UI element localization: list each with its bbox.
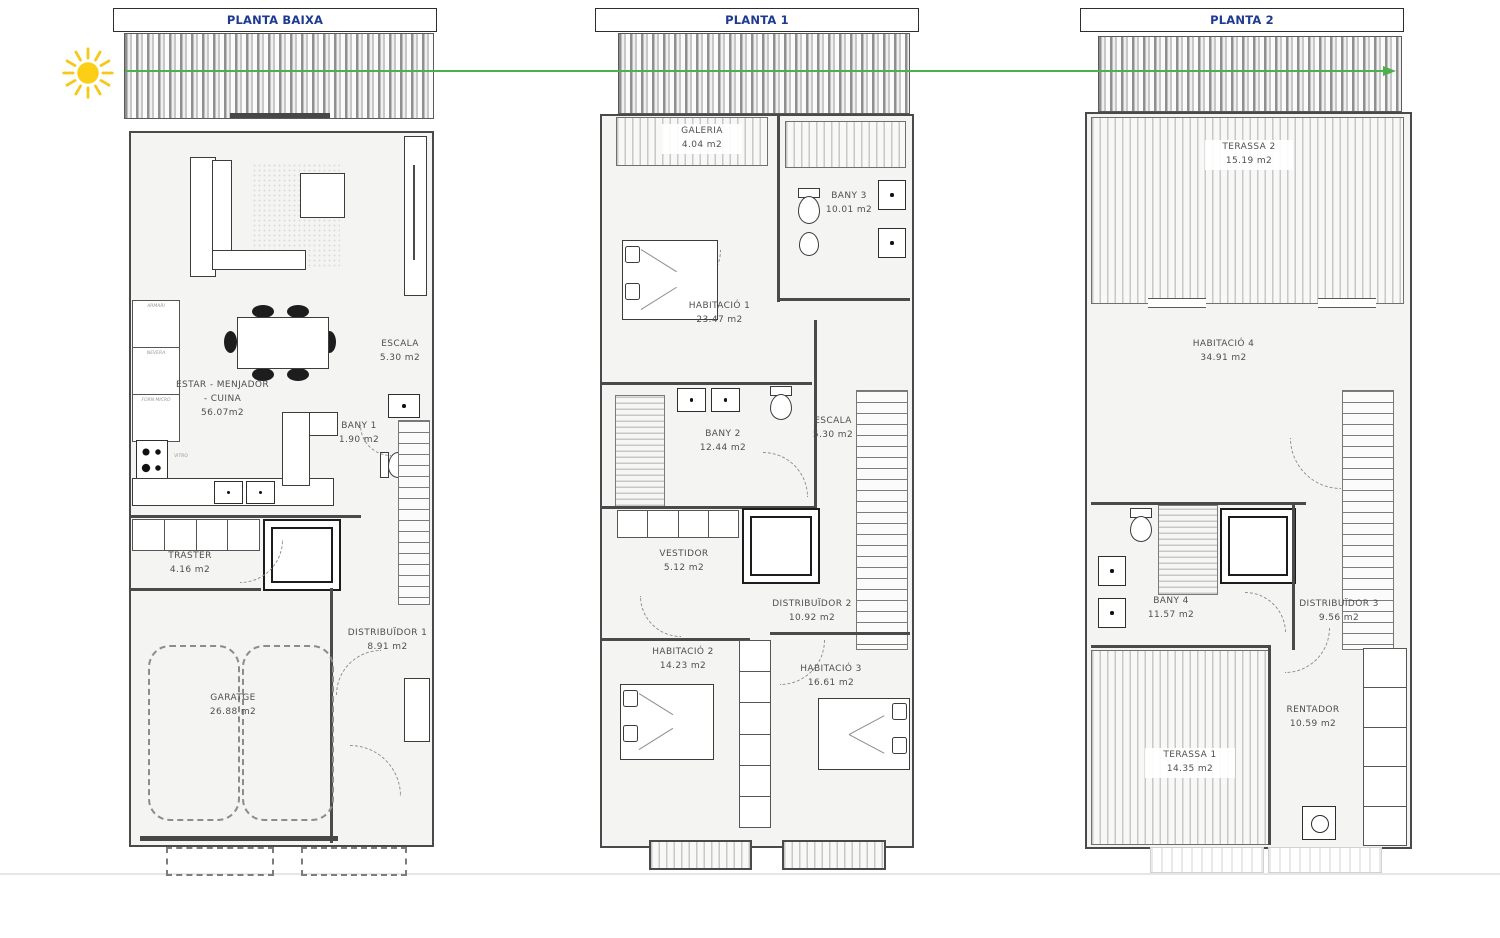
- bath-sink: [711, 388, 740, 412]
- chair: [224, 331, 237, 353]
- elevator-shaft-p1: [742, 508, 820, 584]
- room-label-bany2: BANY 2 12.44 m2: [688, 428, 758, 456]
- bath-cabinet: [1098, 598, 1126, 628]
- room-label-rentador: RENTADOR 10.59 m2: [1272, 704, 1354, 732]
- car-outline: [242, 645, 334, 821]
- room-label-bany3: BANY 3 10.01 m2: [815, 190, 883, 218]
- parking-space-outline: [301, 847, 407, 876]
- balcony-ghost: [1150, 847, 1264, 873]
- room-label-distribuidor1: DISTRIBUÏDOR 1 8.91 m2: [340, 627, 435, 655]
- plan-title-planta-1: PLANTA 1: [595, 8, 919, 32]
- double-bed: [818, 698, 910, 770]
- garage-door: [140, 836, 338, 841]
- room-label-terassa1: TERASSA 1 14.35 m2: [1145, 748, 1235, 778]
- plan-title-planta-2: PLANTA 2: [1080, 8, 1404, 32]
- room-label-bany1: BANY 1 1.90 m2: [328, 420, 390, 448]
- kitchen-label: NEVERA: [133, 348, 179, 356]
- entry-porch: [404, 678, 430, 742]
- kitchen-sink: [214, 481, 243, 504]
- floorplan-sheet: PLANTA BAIXA ARMARI NEVERA FORN MICRO VI…: [0, 0, 1500, 938]
- bath-sink: [677, 388, 706, 412]
- window: [1318, 298, 1376, 308]
- balcony-ghost: [1268, 847, 1382, 873]
- balcony-p1: [649, 840, 752, 870]
- pergola-hatch-pb: [124, 33, 434, 119]
- kitchen-label: ARMARI: [133, 301, 179, 309]
- interior-wall: [777, 298, 910, 301]
- balcony-p1: [782, 840, 886, 870]
- coffee-table: [300, 173, 345, 218]
- room-label-garatge: GARATGE 26.88 m2: [193, 692, 273, 720]
- elevator-shaft-p2: [1220, 508, 1296, 584]
- shower-hatch: [1158, 505, 1218, 595]
- pergola-hatch-p2: [1098, 36, 1402, 112]
- room-label-distribuidor3: DISTRIBUÏDOR 3 9.56 m2: [1288, 598, 1390, 626]
- washing-machine: [1302, 806, 1336, 840]
- room-label-habitacio3: HABITACIÓ 3 16.61 m2: [785, 663, 877, 691]
- toilet-bowl: [770, 394, 792, 420]
- orientation-arrow-east: [125, 70, 1384, 72]
- sofa-seat: [212, 250, 306, 270]
- interior-wall: [777, 114, 780, 302]
- cooktop: [136, 440, 168, 482]
- room-label-escala-p1: ESCALA 5.30 m2: [800, 415, 866, 443]
- pergola-hatch-p1: [618, 33, 910, 114]
- room-label-habitacio2: HABITACIÓ 2 14.23 m2: [638, 646, 728, 674]
- kitchen-sink: [246, 481, 275, 504]
- car-outline: [148, 645, 240, 821]
- wall-unit-line: [413, 165, 415, 260]
- kitchen-label-vitro: VITRO: [170, 455, 192, 460]
- bath-cabinet: [1098, 556, 1126, 586]
- room-label-distribuidor2: DISTRIBUÏDOR 2 10.92 m2: [762, 598, 862, 626]
- bath-cabinet: [878, 228, 906, 258]
- room-label-galeria: GALERIA 4.04 m2: [662, 124, 742, 154]
- pergola-edge-pb: [230, 113, 330, 118]
- chair: [287, 368, 309, 381]
- window: [1148, 298, 1206, 308]
- orientation-arrow-head: [1383, 66, 1396, 76]
- room-label-escala-pb: ESCALA 5.30 m2: [368, 338, 432, 366]
- room-label-habitacio1: HABITACIÓ 1 23.47 m2: [672, 300, 767, 328]
- interior-wall: [600, 638, 750, 641]
- plan-title-planta-baixa: PLANTA BAIXA: [113, 8, 437, 32]
- room-label-vestidor: VESTIDOR 5.12 m2: [648, 548, 720, 576]
- room-label-terassa2: TERASSA 2 15.19 m2: [1205, 140, 1293, 170]
- room-label-habitacio4: HABITACIÓ 4 34.91 m2: [1176, 338, 1271, 366]
- closet-column: [1363, 648, 1407, 846]
- vestidor-shelves: [617, 510, 739, 538]
- interior-wall: [129, 515, 361, 518]
- interior-wall: [770, 632, 910, 635]
- interior-wall: [600, 382, 812, 385]
- double-bed: [620, 684, 714, 760]
- interior-wall: [129, 588, 261, 591]
- interior-wall: [1091, 645, 1271, 648]
- toilet-bowl: [1130, 516, 1152, 542]
- sun-icon: [60, 45, 116, 101]
- kitchen-peninsula-side: [282, 412, 310, 486]
- wall-unit: [404, 136, 427, 296]
- bany3-skylight-hatch: [785, 121, 906, 168]
- wardrobe-column: [739, 640, 771, 828]
- staircase-pb: [398, 420, 430, 605]
- shower-hatch: [615, 395, 665, 507]
- parking-space-outline: [166, 847, 274, 876]
- room-label-estar-menjador-cuina: ESTAR - MENJADOR - CUINA 56.07m2: [160, 379, 285, 421]
- dining-table: [237, 317, 329, 369]
- interior-wall: [1268, 645, 1271, 845]
- bidet: [799, 232, 819, 256]
- bath-sink: [388, 394, 420, 418]
- room-label-traster: TRASTER 4.16 m2: [150, 550, 230, 578]
- room-label-bany4: BANY 4 11.57 m2: [1136, 595, 1206, 623]
